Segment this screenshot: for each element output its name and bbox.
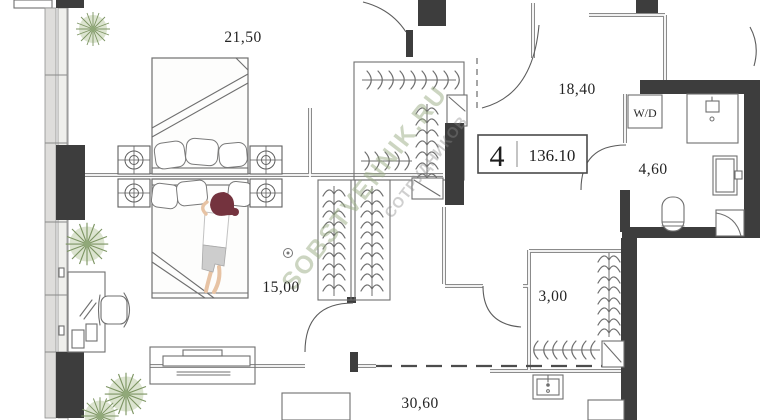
room-label-hallway: 18,40 bbox=[558, 81, 595, 98]
door-arc bbox=[482, 25, 539, 108]
tv-console bbox=[150, 347, 255, 384]
kitchen-fixtures bbox=[282, 375, 624, 420]
pillow bbox=[151, 183, 180, 210]
apartment-info-box: 4 136.10 bbox=[478, 135, 587, 173]
pillow bbox=[176, 179, 208, 206]
corridor-wardrobe bbox=[534, 253, 624, 367]
office-chair bbox=[99, 293, 130, 327]
desk bbox=[68, 272, 105, 352]
toilet-icon bbox=[662, 197, 684, 231]
window-handle-icon bbox=[59, 268, 64, 277]
cabinet bbox=[588, 400, 624, 420]
pillow bbox=[218, 142, 248, 168]
door-arc bbox=[750, 27, 756, 66]
floor-plan-drawing: SOBSTVENNIK.RU СОТРУДНИКОВ 21,50 18,40 4… bbox=[0, 0, 760, 420]
kitchen-sink-icon bbox=[533, 375, 563, 399]
nightstand-icon bbox=[118, 179, 150, 207]
room-label-bedroom-1: 21,50 bbox=[224, 29, 261, 46]
apartment-number: 4 bbox=[490, 140, 505, 173]
nightstand-icon bbox=[250, 179, 282, 207]
door-arc bbox=[363, 2, 406, 32]
sink-icon bbox=[713, 156, 742, 195]
pillow bbox=[153, 140, 186, 170]
shower-icon bbox=[687, 94, 738, 143]
nightstand-icon bbox=[250, 146, 282, 174]
room-label-bathroom: 4,60 bbox=[638, 161, 667, 178]
kitchen-island bbox=[282, 393, 350, 420]
room-label-living: 30,60 bbox=[401, 395, 438, 412]
shower-tray bbox=[716, 210, 744, 236]
plant-icon bbox=[76, 12, 110, 46]
washer-dryer-label: W/D bbox=[633, 106, 657, 120]
decor-icon bbox=[284, 249, 293, 258]
nightstand-icon bbox=[118, 146, 150, 174]
apartment-area: 136.10 bbox=[529, 146, 576, 165]
window-handle-icon bbox=[59, 326, 64, 335]
door-arc bbox=[483, 286, 521, 327]
floor-plan: SOBSTVENNIK.RU СОТРУДНИКОВ 21,50 18,40 4… bbox=[0, 0, 760, 420]
door-arc bbox=[305, 303, 353, 352]
room-label-bedroom-2: 15,00 bbox=[262, 279, 299, 296]
bed-double-top bbox=[152, 58, 248, 174]
plant-icon bbox=[66, 223, 109, 266]
pillow bbox=[185, 138, 219, 167]
room-label-wardrobe: 3,00 bbox=[538, 288, 567, 305]
bed-double-bottom bbox=[151, 179, 254, 298]
